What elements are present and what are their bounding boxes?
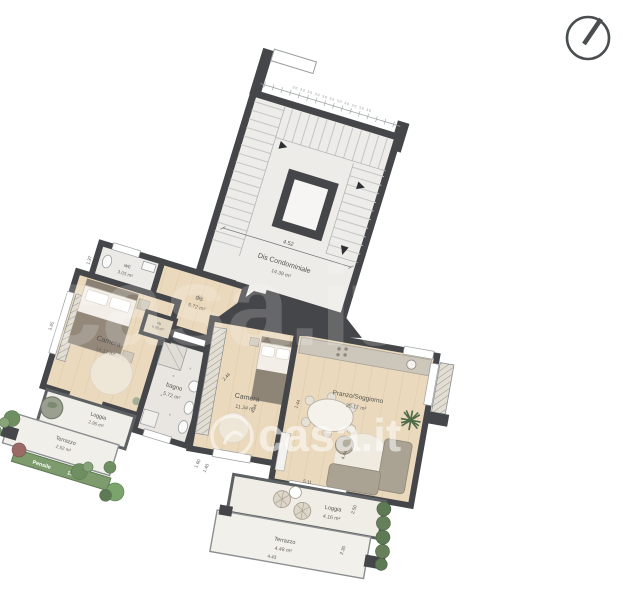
- north-compass-icon: [567, 17, 609, 59]
- wall-stub: [427, 411, 449, 426]
- dim-window-a: 1.60: [193, 458, 201, 469]
- floor-plan-page: 30 30 30 30 30 30 30 30 30 30 30 4.52 Di…: [0, 0, 623, 600]
- railing: [271, 49, 317, 73]
- watermark-large: casa.it: [40, 244, 389, 369]
- floor-plan: 30 30 30 30 30 30 30 30 30 30 30 4.52 Di…: [0, 0, 623, 600]
- watermark-text: casa.it: [258, 409, 401, 461]
- dim-window-b: 1.40: [202, 463, 210, 474]
